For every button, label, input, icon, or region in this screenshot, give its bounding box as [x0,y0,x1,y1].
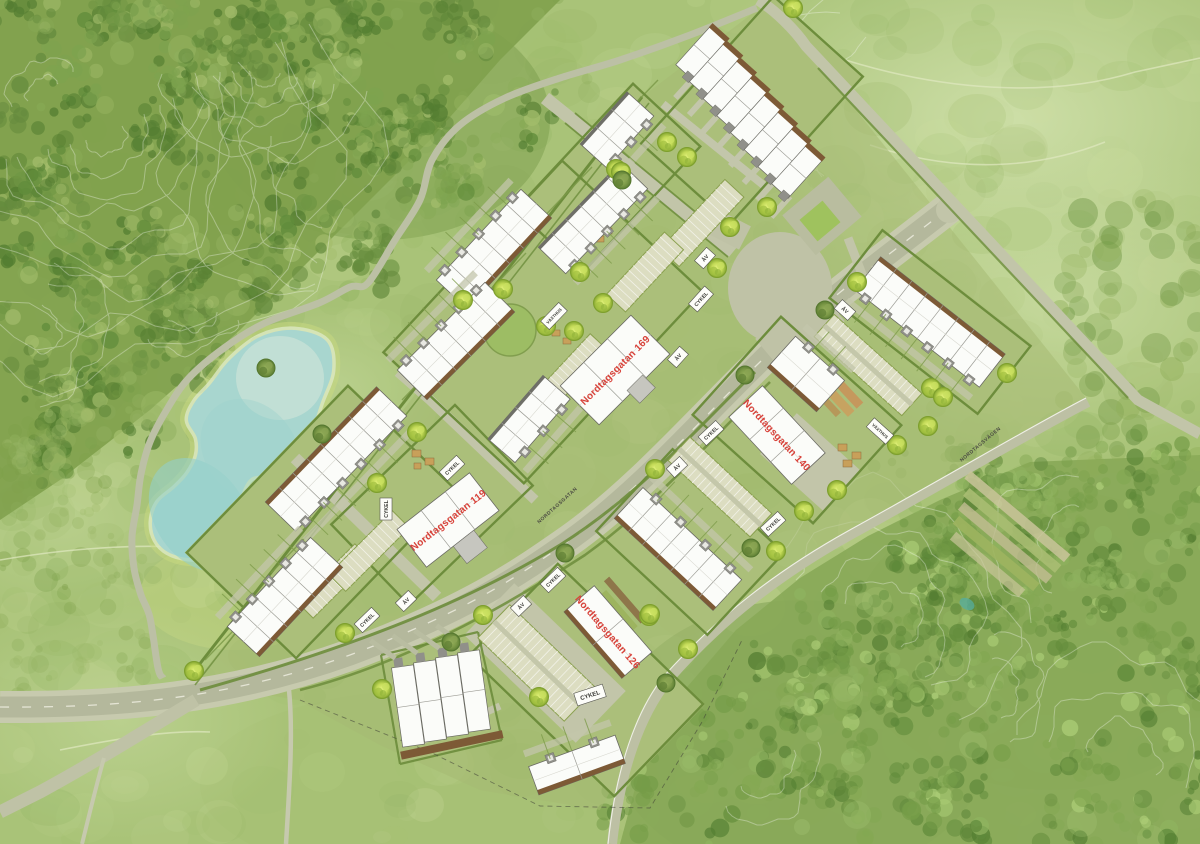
svg-text:CYKEL: CYKEL [384,499,390,517]
